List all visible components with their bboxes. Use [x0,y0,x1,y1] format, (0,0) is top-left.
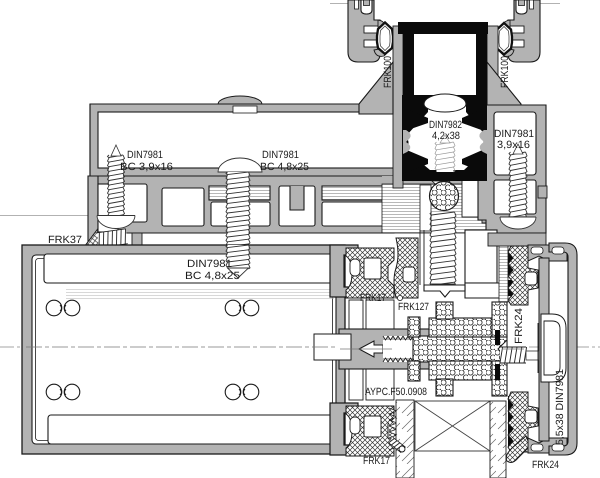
svg-text:FRK127: FRK127 [398,301,429,313]
svg-text:FRK100: FRK100 [499,56,511,88]
svg-text:AYPC.F50.0908: AYPC.F50.0908 [365,386,427,398]
svg-text:4,2x38: 4,2x38 [432,130,460,142]
svg-text:BC 4,8x25: BC 4,8x25 [185,270,240,282]
svg-text:DIN7981: DIN7981 [262,149,299,161]
svg-text:5,5x38 DIN7981: 5,5x38 DIN7981 [554,369,566,445]
svg-text:FRK24: FRK24 [532,459,559,471]
svg-text:BC 4,8x25: BC 4,8x25 [260,161,309,173]
svg-text:FRK100: FRK100 [382,56,394,88]
svg-text:DIN7981: DIN7981 [127,149,163,161]
svg-text:3,9x16: 3,9x16 [497,139,530,151]
svg-text:FRK17: FRK17 [360,292,386,304]
svg-text:BC 3,9x16: BC 3,9x16 [120,161,173,173]
svg-text:DIN7981: DIN7981 [187,258,232,270]
svg-text:FRK37: FRK37 [48,234,82,246]
svg-text:FRK17: FRK17 [363,455,390,467]
svg-text:FRK24: FRK24 [513,308,525,344]
